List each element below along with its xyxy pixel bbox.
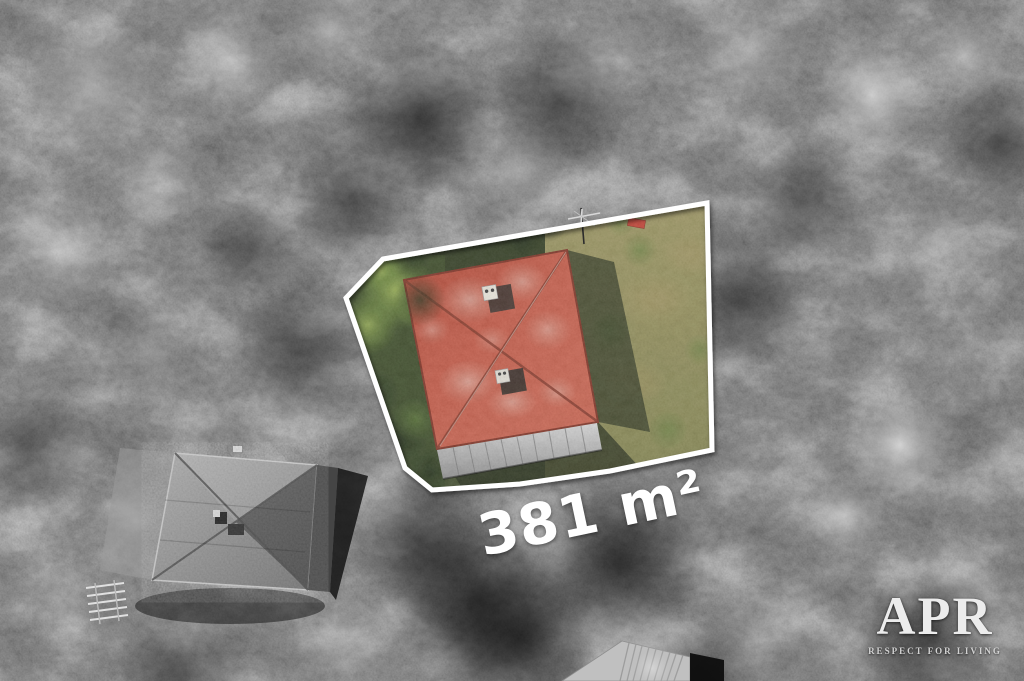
aerial-property-photo: 381 m² APR RESPECT FOR LIVING bbox=[0, 0, 1024, 681]
agency-logo-tagline: RESPECT FOR LIVING bbox=[846, 646, 1024, 656]
agency-logo-name: APR bbox=[846, 589, 1024, 643]
agency-logo: APR RESPECT FOR LIVING bbox=[846, 589, 1024, 656]
photo-canvas bbox=[0, 0, 1024, 681]
